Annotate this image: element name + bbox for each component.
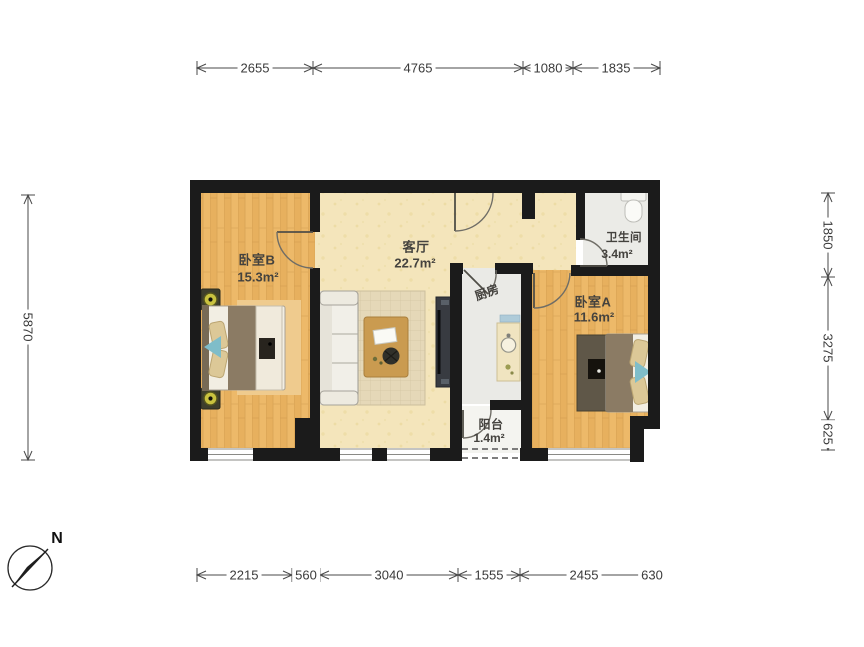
wall-bottom: [520, 448, 548, 461]
dim-bottom-1: 2215: [227, 568, 262, 583]
living-room-name: 客厅: [402, 237, 429, 256]
balcony-name: 阳台: [478, 416, 503, 433]
blanket: [228, 306, 256, 390]
tv-on-wardrobe: [588, 359, 605, 379]
dim-left-1: 5870: [21, 310, 36, 345]
compass: [8, 546, 52, 590]
wall-kitchen-right: [521, 263, 532, 448]
bedroom-b-area: 15.3m²: [237, 270, 278, 285]
wall-pillar: [295, 418, 320, 450]
wall-bottom: [190, 448, 208, 461]
wall-step-v: [630, 416, 644, 462]
bedroom-a-area: 11.6m²: [574, 310, 614, 325]
dim-bottom-6: 630: [638, 568, 666, 583]
floor-plan-drawing: [0, 0, 864, 647]
wall-right: [648, 180, 660, 429]
sofa-armrest: [320, 291, 358, 305]
window: [208, 448, 253, 461]
bedroom-a-name: 卧室A: [575, 292, 612, 311]
wall-kitchen-top: [450, 263, 463, 274]
sink-icon: [501, 338, 515, 352]
wall-bottom: [430, 448, 450, 461]
balcony-area: 1.4m²: [473, 431, 504, 445]
window: [340, 448, 372, 461]
wall-top: [190, 180, 660, 193]
wall-entry-stub: [522, 192, 535, 219]
bedroom-b-name: 卧室B: [239, 250, 276, 269]
dim-top-3: 1080: [531, 61, 566, 76]
faucet-icon: [507, 334, 511, 338]
floor-plan-canvas: 卧室B 15.3m² 客厅 22.7m² 厨房 卫生间 3.4m² 卧室A 11…: [0, 0, 864, 647]
dim-top-4: 1835: [599, 61, 634, 76]
sofa-armrest: [320, 391, 358, 405]
window: [548, 448, 630, 461]
wall-bedroom-b: [310, 192, 320, 232]
dim-right-2: 3275: [821, 331, 836, 366]
wall-left: [190, 180, 201, 461]
dim-top-1: 2655: [238, 61, 273, 76]
coffee-table: [364, 317, 408, 377]
wall-bottom: [372, 448, 387, 461]
bathroom-name: 卫生间: [606, 229, 642, 245]
dim-top-2: 4765: [401, 61, 436, 76]
dim-bottom-5: 2455: [567, 568, 602, 583]
dim-bottom-3: 3040: [372, 568, 407, 583]
kitchen-shelf: [500, 315, 520, 322]
furniture-bedroom-b: [201, 289, 301, 409]
living-room-area: 22.7m²: [394, 256, 435, 271]
dim-bottom-4: 1555: [472, 568, 507, 583]
toilet-bowl: [625, 200, 642, 222]
furniture-kitchen: [497, 315, 520, 381]
blanket: [606, 334, 633, 412]
furniture-bedroom-a: [577, 332, 655, 414]
wall-balcony-divider: [490, 400, 521, 410]
compass-north-label: N: [51, 530, 63, 548]
dim-bottom-2: 560: [292, 568, 320, 583]
wall-kitchen-left: [450, 263, 462, 461]
wall-bedroom-b: [310, 268, 320, 418]
tv-on-cabinet: [259, 338, 275, 359]
window: [387, 448, 430, 461]
dim-right-1: 1850: [821, 218, 836, 253]
bathroom-area: 3.4m²: [601, 247, 632, 261]
magazine: [373, 328, 397, 345]
wall-bathroom-left: [576, 192, 585, 240]
dim-right-3: 625: [821, 420, 836, 448]
tv-screen: [438, 310, 441, 374]
